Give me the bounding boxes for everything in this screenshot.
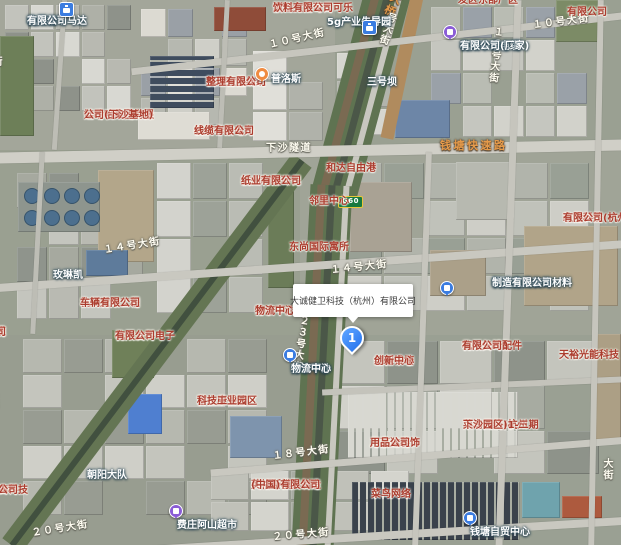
pin-orange-icon[interactable] (255, 67, 269, 81)
label-chaoyang-brigade-text: 朝阳大队 (87, 470, 127, 482)
building-block (214, 7, 266, 31)
building (187, 410, 226, 444)
water-tank (64, 188, 80, 204)
map-infobox[interactable]: 大诚健卫科技（杭州）有限公司 (293, 284, 413, 317)
building (49, 284, 79, 319)
label-qiantang-ftz-text: 钱塘自贸中心 (470, 527, 530, 539)
building (146, 446, 185, 480)
label-cainiao-network-text: 菜鸟网络 (371, 489, 411, 501)
label-suning-red-text: 物流中心 (255, 306, 295, 318)
label-ingersoll-mould-text: (中国)有限公司 (251, 480, 320, 492)
circle-blue-icon[interactable] (283, 348, 297, 362)
label-youke-electronics-text: 有限公司 (115, 331, 155, 343)
building (23, 410, 62, 444)
building-block (522, 482, 560, 518)
label-glp-text: 普洛斯 (271, 74, 301, 86)
building-block (395, 100, 450, 138)
label-mengshi-decoration-text: 制造有限公司 (492, 278, 552, 290)
building (31, 59, 55, 84)
circle-blue-icon[interactable] (440, 281, 454, 295)
briefcase-blue-icon[interactable] (362, 20, 377, 35)
building (31, 32, 55, 57)
building (557, 73, 587, 104)
building (157, 239, 191, 275)
circle-purple-icon[interactable] (169, 504, 183, 518)
building (253, 112, 287, 141)
label-jiuneng-tech-text: 有限公司 (563, 213, 603, 225)
label-road-partial-left-top-text: 街 (0, 56, 1, 68)
label-taikoo-cocacola-text: 饮料有限公司 (273, 3, 333, 15)
building (463, 106, 493, 137)
water-tank (44, 210, 60, 226)
building (17, 247, 47, 282)
label-linli-center-text: 邻里中心 (309, 196, 349, 208)
building (168, 9, 193, 37)
building (526, 106, 556, 137)
building (64, 339, 103, 373)
label-zongbao-innovation-text: 创新中心 (374, 356, 414, 368)
label-aichi-engineering-text: 车辆有限公司 (80, 298, 140, 310)
label-partial-cable-co-text: 公司 (0, 327, 6, 339)
label-zhongce-cable-text: 有限公司(厂家) (460, 41, 529, 53)
building (526, 73, 556, 104)
building-block (456, 162, 514, 220)
infobox-title: 大诚健卫科技（杭州）有限公司 (290, 294, 416, 307)
building (23, 339, 62, 373)
label-tianyu-solar-text: 天裕光能科技 (559, 350, 619, 362)
building (82, 32, 106, 57)
water-tank (64, 210, 80, 226)
water-tank (84, 188, 100, 204)
infobox-pointer (347, 316, 359, 323)
building (431, 40, 461, 71)
briefcase-blue-icon[interactable] (59, 2, 74, 17)
label-fadong-east-plant-text: 发区东部厂区 (458, 0, 518, 7)
building-block (350, 182, 412, 252)
label-yazaki-parts-text: 有限公司 (462, 341, 502, 353)
circle-purple-icon[interactable] (443, 25, 457, 39)
satellite-map[interactable]: 杭州松下马达有限公司5g产业先导园浙江太古可口可乐饮料有限公司发区东部厂区有限公… (0, 0, 621, 545)
label-cainiao-park-text: 下沙园区)1-二期 (463, 420, 539, 432)
label-5g-industrial-park-text: 5g产业先导园 (327, 17, 391, 29)
building (228, 339, 267, 373)
building (251, 502, 289, 531)
label-road-xiasha-tunnel-text: 下沙隧道 (266, 143, 312, 155)
label-road-qiantang-expwy-text: 钱塘快速路 (440, 139, 508, 152)
building (107, 59, 131, 84)
building (289, 112, 323, 141)
building (157, 163, 191, 199)
label-huaxin-cable-text: 线缆有限公司 (194, 126, 254, 138)
building (82, 59, 106, 84)
building-block (562, 496, 602, 518)
building (31, 86, 55, 111)
label-heda-freeport-text: 和达自由港 (326, 163, 376, 175)
building (107, 86, 131, 111)
building (193, 201, 227, 237)
water-tank (84, 210, 100, 226)
label-partial-baogao-text: 限公司 (0, 485, 18, 497)
label-feizhuang-market-text: 费庄阿山超市 (177, 520, 237, 532)
building (557, 106, 587, 137)
building (23, 375, 62, 409)
building (5, 5, 29, 30)
label-wanshida-text: 用品公司 (370, 438, 410, 450)
label-meilinkai-text: 玫琳凯 (53, 270, 83, 282)
label-wahaha-text: 公司(下沙基地) (84, 110, 153, 122)
circle-blue-icon[interactable] (463, 511, 477, 525)
label-sanhaoba-text: 三号坝 (367, 77, 397, 89)
building (141, 9, 166, 37)
label-road-partial-right-text: 大街 (600, 458, 612, 481)
building (157, 201, 191, 237)
label-topright-company-text: 有限公司 (567, 7, 607, 19)
building (550, 163, 589, 199)
map-marker-number: 1 (342, 328, 362, 348)
building (107, 5, 131, 30)
building (193, 163, 227, 199)
building (526, 40, 556, 71)
label-panasonic-motor-text: 有限公司 (27, 16, 67, 28)
label-dongshang-intl-text: 东尚国际寓所 (289, 242, 349, 254)
building-block (524, 226, 618, 306)
building-block (0, 36, 34, 136)
label-suning-poi-text: 物流中心 (291, 364, 331, 376)
label-liqun-paper-text: 纸业有限公司 (241, 176, 301, 188)
building (82, 86, 106, 111)
label-foxconn-park-text: 科技工业园区 (197, 396, 257, 408)
water-tank (44, 188, 60, 204)
building (187, 339, 226, 373)
